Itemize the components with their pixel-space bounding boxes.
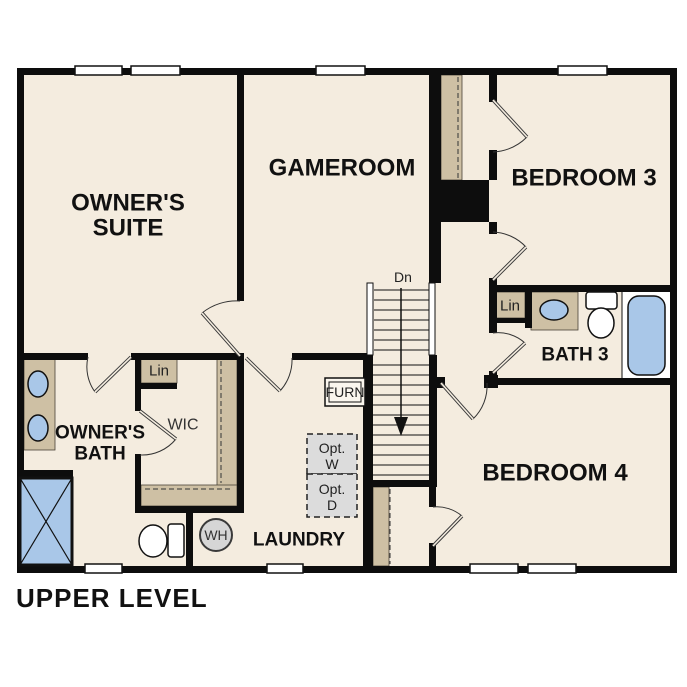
window-owners-suite-1 <box>75 66 122 75</box>
bath3-toilet-tank <box>586 292 617 309</box>
wall-bedroom3-bath3 <box>489 285 677 292</box>
understair-closet-shelf <box>373 487 389 566</box>
owners-toilet-bowl <box>139 525 167 557</box>
wall-wic-bottom <box>135 506 244 513</box>
wall-understair-stub-bottom <box>429 543 436 573</box>
bath3-tub <box>628 296 665 375</box>
label-owners-bath-line2: BATH <box>74 444 125 465</box>
window-laundry <box>267 564 303 573</box>
wall-bedroom4-door-hinge <box>484 375 498 388</box>
label-gameroom: GAMEROOM <box>269 155 416 182</box>
label-bath3: BATH 3 <box>541 345 608 366</box>
label-opt-washer-line2: W <box>325 456 339 472</box>
label-bedroom3: BEDROOM 3 <box>511 165 656 192</box>
label-water-heater: WH <box>204 527 227 543</box>
wall-hall-segment-2 <box>131 353 244 360</box>
wall-hall-segment-1 <box>17 353 88 360</box>
wall-bath3-linen-bottom <box>496 318 525 323</box>
label-owners-suite-line1: OWNER'S <box>71 190 185 217</box>
label-wic-linen: Lin <box>149 363 169 380</box>
wall-hall-segment-3 <box>292 353 373 360</box>
window-bedroom3 <box>558 66 607 75</box>
bath3-sink <box>540 300 568 320</box>
window-bedroom4-1 <box>470 564 518 573</box>
wall-exterior-right <box>670 68 677 573</box>
label-opt-washer-line1: Opt. <box>319 440 345 456</box>
wall-stairs-bottom <box>363 480 437 487</box>
window-owners-bath <box>85 564 122 573</box>
window-owners-suite-2 <box>131 66 180 75</box>
plan-title: UPPER LEVEL <box>16 583 208 614</box>
window-bedroom4-2 <box>528 564 576 573</box>
stair-rail-right <box>429 283 435 355</box>
label-wic: WIC <box>167 417 198 434</box>
label-owners-suite-line2: SUITE <box>93 215 164 242</box>
wall-wic-left-lower <box>135 454 141 513</box>
owners-bath-sink-2 <box>28 415 48 441</box>
wall-gameroom-right <box>429 75 441 283</box>
owners-bath-sink-1 <box>28 371 48 397</box>
wall-bath3-bedroom4 <box>489 378 677 385</box>
stair-rail-left <box>367 283 373 355</box>
wall-wic-linen-bottom <box>141 383 177 389</box>
floor-plan: OWNER'SSUITEGAMEROOMBEDROOM 3BEDROOM 4OW… <box>0 0 687 687</box>
wall-wic-left-upper <box>135 353 141 411</box>
wic-shelf-right <box>217 359 237 487</box>
label-bedroom4: BEDROOM 4 <box>482 460 628 487</box>
wall-bedroom3-closet-stub-bottom <box>489 150 497 180</box>
window-gameroom <box>316 66 365 75</box>
bedroom3-closet-floor <box>441 75 462 180</box>
label-opt-dryer-line2: D <box>327 497 337 513</box>
wall-wic-right <box>237 360 244 513</box>
wall-understair-stub-top <box>429 487 436 507</box>
label-opt-dryer-line1: Opt. <box>319 481 345 497</box>
label-laundry: LAUNDRY <box>253 530 346 551</box>
wall-stairs-right <box>429 355 437 487</box>
chase-solid-block <box>441 180 489 222</box>
wall-bath3-left-upper <box>489 292 497 333</box>
wall-bath3-linen-right <box>525 292 532 328</box>
wic-shelf-bottom <box>141 485 237 506</box>
owners-toilet-tank <box>168 524 184 557</box>
bath3-toilet-bowl <box>588 308 614 338</box>
label-owners-bath-line1: OWNER'S <box>55 423 145 444</box>
wall-bedroom3-closet-stub-top <box>489 75 497 102</box>
label-furnace: FURN <box>326 384 365 400</box>
label-bath3-linen: Lin <box>500 298 520 315</box>
wall-owners-suite-right <box>237 75 244 301</box>
label-stairs-down: Dn <box>394 269 412 285</box>
wall-toilet-nook-right <box>186 513 193 566</box>
